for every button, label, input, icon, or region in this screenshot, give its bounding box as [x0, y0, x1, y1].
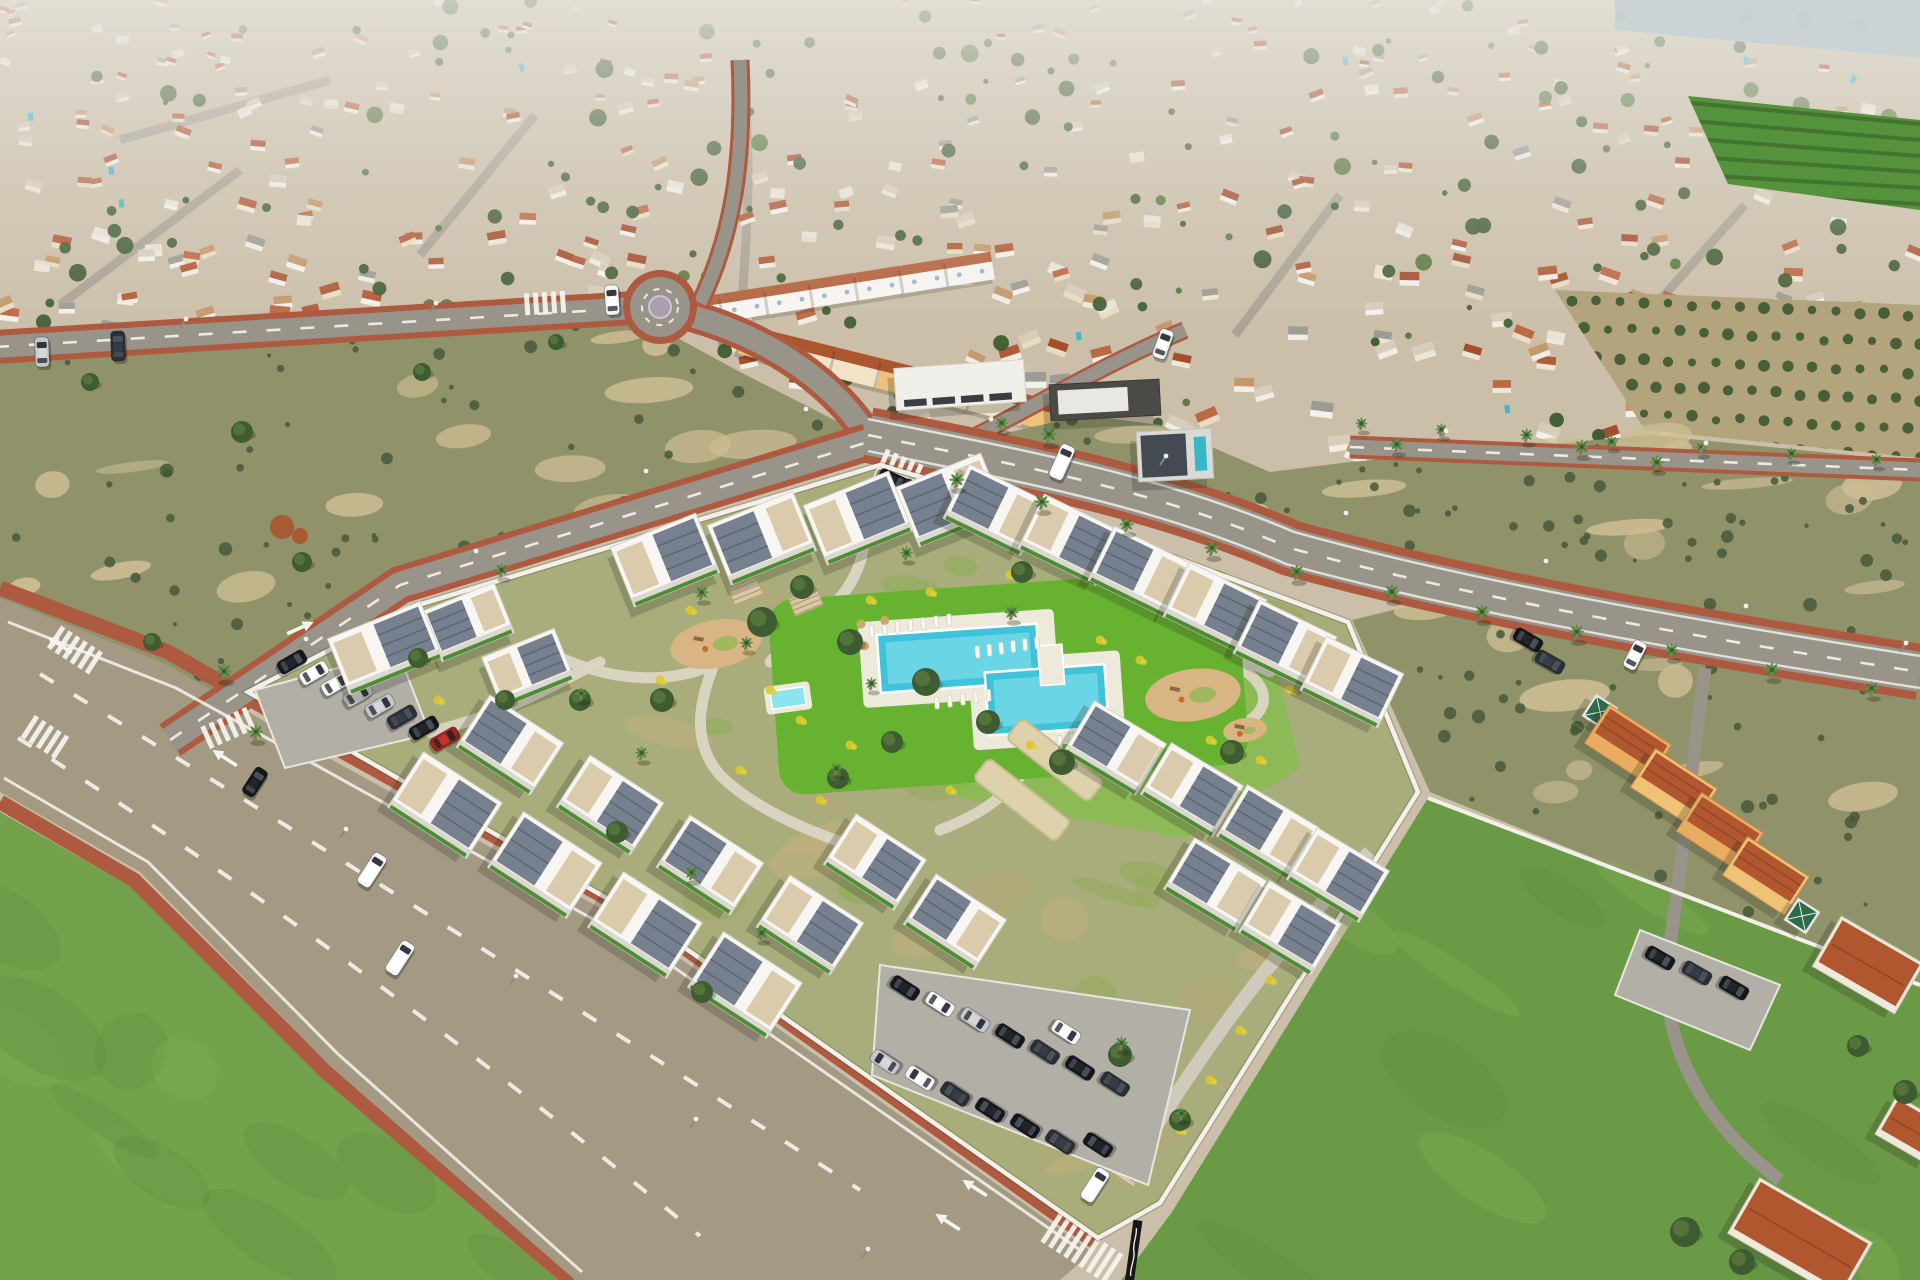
palm-crown: [1580, 445, 1584, 449]
palm-crown: [1575, 630, 1579, 634]
sun-lounger: [946, 614, 951, 626]
scrub-bush: [104, 557, 115, 568]
palm-shadow: [697, 600, 711, 606]
olive-tree: [1567, 296, 1578, 307]
flower-bush: [439, 699, 445, 705]
haze-overlay: [0, 0, 1920, 340]
scrub-bush: [267, 353, 271, 357]
palm-shadow: [1007, 620, 1021, 626]
car-windshield: [606, 290, 616, 297]
scrub-bush: [1495, 761, 1506, 772]
leafy-tree-highlight: [978, 712, 991, 725]
scrub-bush: [106, 481, 112, 487]
leafy-tree-highlight: [415, 365, 425, 375]
scrub-bush: [1417, 666, 1424, 673]
palm-shadow: [498, 577, 511, 582]
leafy-tree-highlight: [840, 632, 854, 646]
scrub-bush: [219, 542, 233, 556]
scrub-bush: [1880, 569, 1892, 581]
palm-shadow: [1652, 470, 1666, 476]
scrub-bush: [1516, 680, 1522, 686]
palm-shadow: [1392, 452, 1406, 458]
olive-tree: [1854, 308, 1865, 319]
scrub-bush: [352, 346, 358, 352]
olive-tree: [1758, 302, 1770, 314]
olive-tree: [1831, 306, 1840, 315]
sun-lounger: [960, 693, 965, 705]
town-tree: [1549, 413, 1564, 428]
dark-compound-roof: [1057, 387, 1128, 415]
car: [34, 337, 51, 371]
palm-crown: [222, 669, 226, 673]
scrub-bush: [1685, 555, 1692, 562]
palm-crown: [955, 478, 959, 482]
palm-crown: [1525, 433, 1529, 437]
street-light-head: [1544, 559, 1549, 564]
scrub-bush: [65, 360, 71, 366]
car: [110, 331, 127, 365]
olive-tree: [1723, 385, 1733, 395]
olive-tree: [1735, 413, 1745, 423]
leafy-tree-highlight: [883, 733, 895, 745]
palm-crown: [1125, 522, 1129, 526]
olive-tree: [1747, 385, 1757, 395]
leafy-tree-highlight: [1013, 563, 1025, 575]
sun-lounger: [882, 623, 887, 635]
street-light-head: [514, 974, 519, 979]
olive-tree: [1831, 421, 1841, 431]
sun-lounger: [934, 616, 939, 628]
street-light-head: [1704, 441, 1709, 446]
palm-crown: [1040, 500, 1044, 504]
olive-tree: [1735, 359, 1745, 369]
palm-shadow: [1387, 600, 1402, 606]
scrub-bush: [1533, 808, 1540, 815]
scrub-bush: [1415, 508, 1420, 513]
scrub-bush: [1803, 598, 1817, 612]
car-windshield: [37, 342, 47, 348]
olive-tree: [1856, 364, 1865, 373]
scrub-bush: [1452, 505, 1458, 511]
town-tree: [1182, 399, 1190, 407]
scrub-bush: [341, 534, 349, 542]
street-light-head: [344, 827, 349, 832]
autumn-bush: [270, 515, 294, 539]
palm-crown: [1000, 421, 1004, 425]
scrub-bush: [1654, 870, 1667, 883]
scrub-bush: [1726, 513, 1737, 524]
roundabout-island: [649, 296, 671, 318]
scrub-bush: [1565, 472, 1576, 483]
palm-crown: [1210, 546, 1214, 550]
olive-tree: [1722, 328, 1734, 340]
scrub-bush: [1524, 475, 1535, 486]
olive-tree: [1699, 328, 1709, 338]
scrub-bush: [1496, 630, 1505, 639]
car-roof: [37, 349, 46, 358]
flower-bush: [771, 689, 777, 695]
flower-bush: [1261, 759, 1267, 765]
scrub-bush: [1594, 480, 1606, 492]
sun-lounger: [934, 697, 939, 709]
leafy-tree-highlight: [145, 635, 155, 645]
olive-tree: [1591, 296, 1601, 306]
scrub-bush: [524, 340, 537, 353]
flower-bush: [931, 591, 937, 597]
palm-crown: [1010, 610, 1014, 614]
flower-bush: [1101, 639, 1107, 645]
scrub-bush: [1734, 723, 1742, 731]
olive-tree: [1639, 298, 1650, 309]
scrub-bush: [1739, 520, 1745, 526]
scrub-bush: [277, 365, 284, 372]
scrub-bush: [1721, 530, 1734, 543]
scrub-bush: [1818, 735, 1825, 742]
olive-tree: [1891, 393, 1901, 403]
town-house: [1493, 380, 1511, 393]
scrub-bush: [1863, 902, 1867, 906]
leafy-tree-highlight: [1222, 742, 1235, 755]
olive-tree: [1711, 358, 1720, 367]
scrub-bush: [1687, 538, 1696, 547]
scrub-bush: [218, 658, 224, 664]
scrub-bush: [304, 612, 311, 619]
flower-bush: [821, 799, 827, 805]
palm-shadow: [1037, 510, 1052, 516]
car-roof: [113, 343, 122, 352]
scrub-bush: [1393, 462, 1398, 467]
scrub-bush: [1336, 479, 1341, 484]
flower-bush: [741, 769, 747, 775]
street-light-head: [694, 1117, 699, 1122]
street-light-head: [1164, 454, 1169, 459]
scrub-bush: [664, 450, 672, 458]
car-rear-glass: [607, 306, 617, 312]
scrub-bush: [173, 622, 177, 626]
olive-tree: [1614, 354, 1625, 365]
flower-bush: [1271, 979, 1277, 985]
town-house: [1310, 400, 1334, 418]
street-light-head: [184, 317, 189, 322]
palm-shadow: [687, 880, 701, 886]
palm-crown: [500, 568, 504, 572]
scrub-bush: [160, 464, 174, 478]
street-light-head: [474, 549, 479, 554]
scrub-bush: [1472, 710, 1486, 724]
olive-tree: [1902, 368, 1913, 379]
street-light-head: [434, 301, 439, 306]
scrub-bush: [1403, 505, 1416, 518]
flower-bush: [1141, 659, 1147, 665]
palm-crown: [1390, 590, 1394, 594]
scrub-bush: [1633, 558, 1637, 562]
palm-crown: [1874, 457, 1878, 461]
scrub-bush: [1595, 550, 1607, 562]
palm-shadow: [251, 740, 266, 746]
scrub-bush: [1438, 730, 1451, 743]
olive-tree: [1735, 302, 1745, 312]
olive-tree: [1843, 391, 1854, 402]
scrub-bush: [1515, 703, 1525, 713]
scrub-bush: [1767, 794, 1778, 805]
palm-shadow: [1577, 455, 1592, 461]
leafy-tree-highlight: [233, 423, 245, 435]
leafy-tree-highlight: [410, 650, 421, 661]
atmospheric-haze-layer: [0, 0, 1920, 340]
scrub-bush: [1445, 510, 1451, 516]
scrub-bush: [732, 386, 744, 398]
sun-lounger: [986, 689, 991, 701]
scrub-bush: [285, 422, 290, 427]
olive-tree: [1868, 337, 1876, 345]
scrub-bush: [325, 583, 331, 589]
palm-crown: [760, 931, 764, 935]
car: [604, 284, 622, 318]
olive-tree: [1782, 361, 1793, 372]
scrub-bush: [1573, 515, 1583, 525]
leafy-tree-highlight: [1673, 1220, 1690, 1237]
flower-bush: [691, 609, 697, 615]
palm-shadow: [1867, 696, 1881, 702]
scrub-bush: [568, 444, 574, 450]
sun-lounger: [869, 625, 874, 637]
town-house: [1023, 372, 1046, 388]
olive-tree: [1674, 383, 1685, 394]
palm-shadow: [1698, 455, 1710, 460]
palm-shadow: [1667, 658, 1681, 664]
flower-bush: [951, 789, 957, 795]
olive-tree: [1867, 394, 1877, 404]
scrub-bush: [1844, 833, 1852, 841]
scrub-bush: [236, 464, 244, 472]
car-roof: [607, 297, 617, 307]
sun-lounger: [1022, 639, 1027, 651]
sun-lounger: [895, 621, 900, 633]
olive-tree: [1712, 416, 1720, 424]
palm-shadow: [1873, 467, 1885, 472]
olive-tree: [1783, 417, 1792, 426]
olive-tree: [1640, 409, 1648, 417]
olive-tree: [1770, 386, 1781, 397]
palm-shadow: [1477, 620, 1492, 626]
scrub-bush: [331, 548, 340, 557]
palm-shadow: [903, 560, 916, 565]
street-light-head: [866, 1247, 871, 1252]
scrub-bush: [381, 453, 393, 465]
olive-tree: [1698, 382, 1710, 394]
scrub-bush: [1444, 707, 1456, 719]
scrub-bush: [634, 414, 644, 424]
olive-tree: [1674, 325, 1685, 336]
olive-tree: [1650, 382, 1661, 393]
scrub-bush: [1814, 877, 1822, 885]
palm-crown: [869, 681, 873, 685]
scrub-bush: [1902, 539, 1908, 545]
flower-bush: [1211, 1079, 1217, 1085]
scrub-bush: [469, 400, 479, 410]
olive-tree: [1880, 365, 1888, 373]
town-house-roof: [1234, 378, 1254, 387]
olive-tree: [1808, 306, 1817, 315]
olive-tree: [1627, 324, 1636, 333]
scrub-bush: [372, 533, 377, 538]
olive-tree: [1771, 331, 1780, 340]
palm-crown: [1439, 427, 1443, 431]
palm-shadow: [1358, 431, 1370, 436]
olive-tree: [1616, 297, 1625, 306]
olive-tree: [1807, 419, 1818, 430]
scrub-bush: [231, 618, 243, 630]
palm-crown: [1870, 686, 1874, 690]
street-light-head: [304, 637, 309, 642]
street-light-head: [1744, 604, 1749, 609]
sun-lounger: [1034, 637, 1039, 649]
palm-shadow: [952, 488, 967, 494]
sun-lounger: [1011, 640, 1016, 652]
olive-tree: [1878, 307, 1890, 319]
palm-shadow: [1178, 1121, 1190, 1126]
palm-shadow: [1122, 532, 1136, 538]
building: [887, 360, 1027, 420]
olive-tree: [1855, 422, 1865, 432]
palm-shadow: [1043, 443, 1059, 449]
olive-tree: [1664, 299, 1673, 308]
leafy-tree-highlight: [497, 692, 508, 703]
scrub-bush: [1255, 492, 1267, 504]
scrub-bush: [441, 398, 447, 404]
palm-shadow: [758, 940, 771, 945]
olive-tree: [1807, 362, 1818, 373]
sun-lounger: [975, 646, 980, 658]
scrub-bush: [1845, 816, 1858, 829]
leafy-tree-highlight: [1895, 1082, 1908, 1095]
palm-shadow: [1523, 442, 1536, 447]
sun-lounger: [987, 644, 992, 656]
scrub-bush: [130, 572, 140, 582]
olive-tree: [1686, 410, 1698, 422]
palm-shadow: [1207, 556, 1222, 562]
sun-lounger: [999, 642, 1004, 654]
palm-crown: [1395, 442, 1399, 446]
palm-shadow: [638, 760, 651, 765]
olive-tree: [1818, 390, 1830, 402]
scrub-bush: [1438, 675, 1443, 680]
palm-shadow: [1572, 640, 1587, 646]
scrub-bush: [433, 348, 445, 360]
scrub-bush: [1860, 554, 1873, 567]
leafy-tree-highlight: [750, 610, 767, 627]
scrub-bush: [1509, 522, 1518, 531]
leafy-tree-highlight: [652, 690, 665, 703]
olive-tree: [1903, 311, 1913, 321]
flower-bush: [871, 599, 877, 605]
car-windshield: [113, 336, 123, 342]
palm-shadow: [1292, 580, 1307, 586]
car-rear-glass: [37, 358, 47, 363]
olive-tree: [1795, 390, 1806, 401]
flower-bush: [661, 679, 667, 685]
scrub-bush: [690, 368, 696, 374]
sun-lounger: [973, 691, 978, 703]
sun-lounger: [921, 618, 926, 630]
street-light-head: [644, 469, 649, 474]
scrub-bush: [1284, 507, 1290, 513]
scrub-bush: [263, 542, 269, 548]
leafy-tree-highlight: [1732, 1252, 1746, 1266]
palm-shadow: [868, 691, 880, 696]
sun-lounger: [947, 695, 952, 707]
palm-crown: [1770, 668, 1774, 672]
leafy-tree-highlight: [915, 671, 930, 686]
palm-shadow: [218, 680, 234, 686]
olive-tree: [1759, 415, 1770, 426]
olive-tree: [1688, 358, 1696, 366]
palm-crown: [1670, 648, 1674, 652]
palm-crown: [254, 730, 258, 734]
flower-bush: [1211, 739, 1217, 745]
palm-crown: [1359, 421, 1363, 425]
palm-shadow: [743, 650, 756, 655]
scrub-bush: [1892, 533, 1902, 543]
scrub-bush: [1859, 497, 1867, 505]
scrub-bush: [1714, 479, 1721, 486]
scrub-bush: [1663, 518, 1673, 528]
palm-shadow: [833, 776, 845, 781]
scrub-bush: [246, 446, 253, 453]
leafy-tree-highlight: [83, 375, 93, 385]
scrub-bush: [1543, 520, 1554, 531]
pool-bridge-deck: [1038, 644, 1065, 686]
palm-shadow: [578, 701, 590, 706]
villa-pool: [1194, 436, 1208, 471]
palm-crown: [1480, 610, 1484, 614]
olive-tree: [1663, 357, 1673, 367]
olive-tree: [1758, 360, 1770, 372]
leafy-tree-highlight: [792, 577, 805, 590]
scrub-bush: [1771, 477, 1779, 485]
palm-shadow: [998, 430, 1011, 435]
car-rear-glass: [113, 352, 123, 357]
leafy-tree-highlight: [608, 823, 620, 835]
sun-lounger: [908, 619, 913, 631]
palm-shadow: [1767, 678, 1782, 684]
palm-crown: [640, 751, 644, 755]
palm-crown: [690, 870, 694, 874]
street-light-head: [804, 407, 809, 412]
palm-crown: [1047, 432, 1051, 436]
olive-tree: [1879, 422, 1888, 431]
palm-crown: [1655, 460, 1659, 464]
scrub-bush: [1359, 466, 1365, 472]
scrub-bush: [1609, 684, 1616, 691]
olive-tree: [1902, 423, 1913, 434]
palm-crown: [700, 590, 704, 594]
scrub-bush: [1464, 670, 1474, 680]
olive-tree: [1843, 334, 1854, 345]
leafy-tree-highlight: [1849, 1037, 1861, 1049]
palm-crown: [1609, 439, 1613, 443]
aerial-scene-svg: [0, 0, 1920, 1280]
leafy-tree-highlight: [550, 336, 559, 345]
street-light-head: [1904, 641, 1909, 646]
olive-tree: [1604, 326, 1612, 334]
town-house-roof: [1493, 380, 1511, 388]
scrub-bush: [287, 602, 292, 607]
scrub-bush: [812, 420, 823, 431]
building: [1042, 379, 1161, 430]
scrub-bush: [1717, 548, 1727, 558]
flower-bush: [1241, 1029, 1247, 1035]
